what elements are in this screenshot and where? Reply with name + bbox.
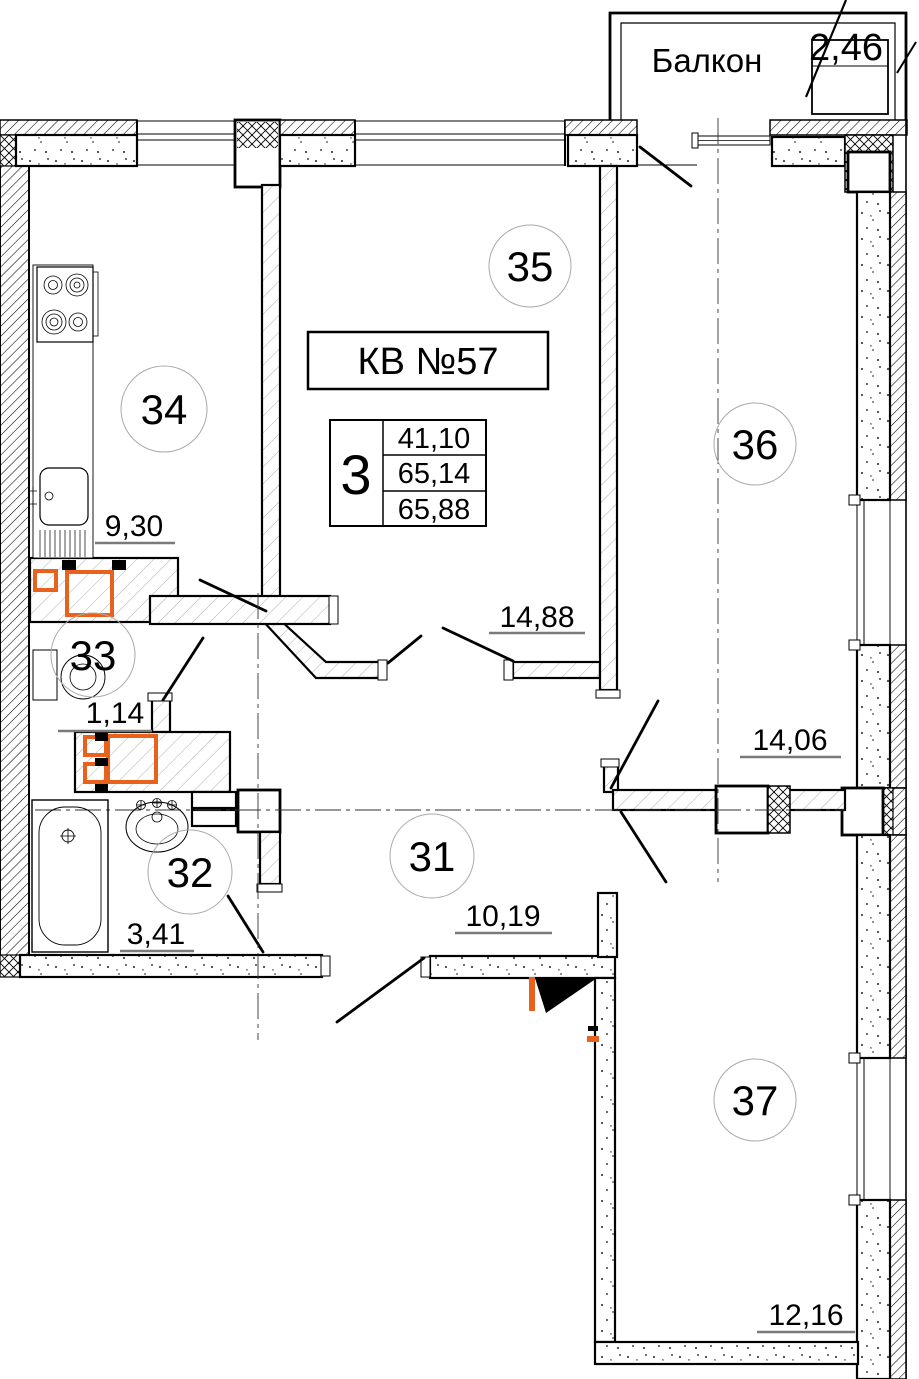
balcony-area-label: 2,46 xyxy=(809,27,883,69)
room-number-32: 32 xyxy=(167,849,214,896)
window-kitchen xyxy=(137,120,237,166)
wall-mark-orange xyxy=(587,1036,599,1042)
window-room-36 xyxy=(849,495,890,650)
door-swing-hall-left xyxy=(388,636,421,663)
door-swing-balcony xyxy=(640,147,691,186)
room-number-33: 33 xyxy=(70,632,117,679)
room-area-34: 9,30 xyxy=(105,510,163,543)
summary-living-area: 41,10 xyxy=(398,423,471,455)
summary-table: 3 41,10 65,14 65,88 xyxy=(330,420,486,526)
balcony-label: Балкон xyxy=(652,42,763,79)
door-swing-entrance xyxy=(337,958,424,1022)
summary-total-area: 65,88 xyxy=(398,494,471,526)
kitchen-counter xyxy=(29,265,98,558)
door-swing-wc-33 xyxy=(163,638,203,700)
bathtub xyxy=(32,800,108,952)
entry-door-mark-orange xyxy=(529,977,535,1011)
room-area-32: 3,41 xyxy=(127,918,185,951)
room-number-31: 31 xyxy=(409,833,456,880)
window-room-35 xyxy=(355,120,565,166)
floor-plan-page: Балкон 2,46 КВ №57 3 41,10 65,14 65,88 3… xyxy=(0,0,919,1379)
room-area-33: 1,14 xyxy=(86,697,144,730)
room-number-35: 35 xyxy=(507,243,554,290)
window-room-37 xyxy=(849,1053,890,1205)
room-number-34: 34 xyxy=(141,386,188,433)
floor-plan-drawing: Балкон 2,46 КВ №57 3 41,10 65,14 65,88 3… xyxy=(0,0,919,1379)
window-balcony xyxy=(692,133,770,148)
room-area-35: 14,88 xyxy=(499,601,574,634)
room-number-37: 37 xyxy=(732,1077,779,1124)
room-number-36: 36 xyxy=(732,421,779,468)
room-area-37: 12,16 xyxy=(768,1299,843,1332)
room-area-31: 10,19 xyxy=(465,900,540,933)
summary-rooms-count: 3 xyxy=(340,443,371,506)
entry-door-leaf xyxy=(535,978,597,1013)
washbasin xyxy=(126,799,188,853)
door-swing-room-37 xyxy=(621,812,666,882)
door-swing-room-36 xyxy=(611,701,658,788)
apartment-number: КВ №57 xyxy=(357,341,498,383)
room-area-36: 14,06 xyxy=(752,724,827,757)
summary-area-without-balcony: 65,14 xyxy=(398,458,471,490)
